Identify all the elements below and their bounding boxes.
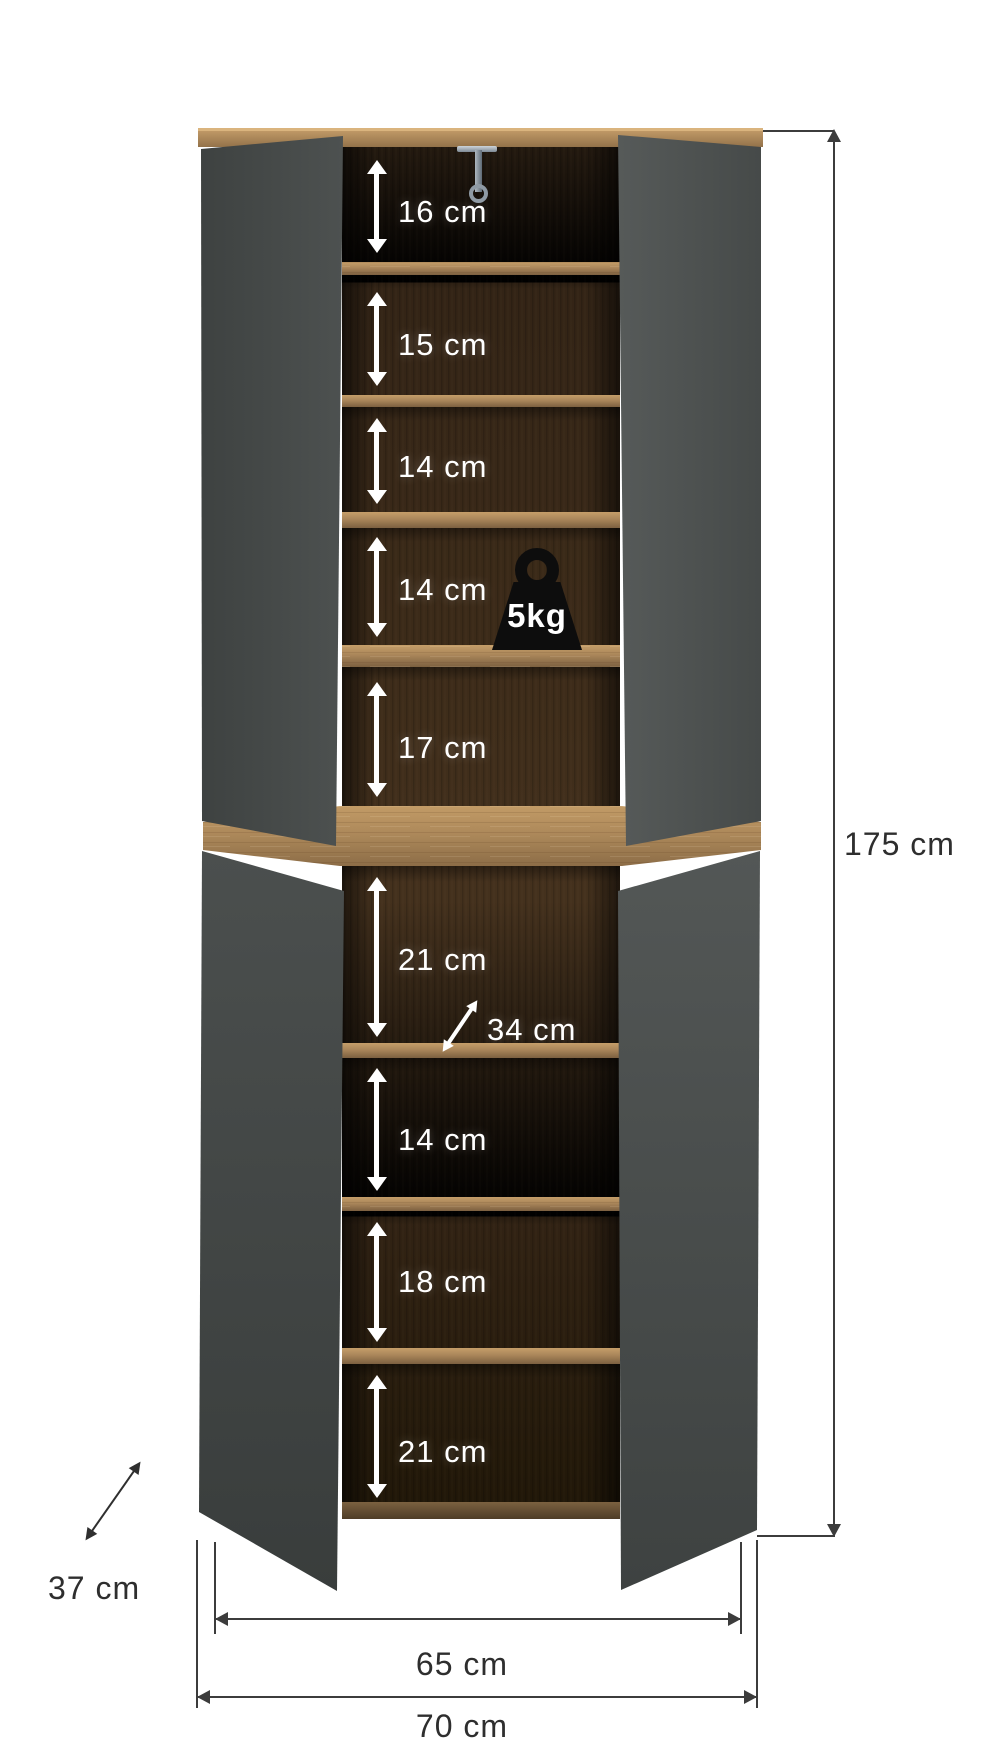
compartment-height-label: 21 cm	[398, 1434, 487, 1470]
measure-arrow-21cm-a	[374, 890, 379, 1024]
inner-width-dim-line	[215, 1618, 741, 1620]
inner-width-arrowhead-right	[728, 1612, 741, 1626]
door-upper-left	[201, 136, 343, 846]
height-dim-arrowhead-up	[827, 129, 841, 142]
outer-width-label: 70 cm	[400, 1708, 524, 1745]
outer-width-arrowhead-right	[744, 1690, 757, 1704]
inner-width-label: 65 cm	[400, 1646, 524, 1683]
inner-width-arrowhead-left	[215, 1612, 228, 1626]
top-board-highlight	[198, 128, 763, 131]
measure-arrow-14cm-c	[374, 1081, 379, 1178]
compartment-height-label: 21 cm	[398, 942, 487, 978]
cabinet-floor-board	[342, 1502, 620, 1519]
measure-arrow-17cm	[374, 695, 379, 784]
compartment-height-label: 14 cm	[398, 1122, 487, 1158]
measure-arrow-15cm	[374, 305, 379, 373]
measure-arrow-21cm-b	[374, 1388, 379, 1485]
compartment-height-label: 14 cm	[398, 572, 487, 608]
total-height-label: 175 cm	[844, 826, 955, 863]
compartment-height-label: 14 cm	[398, 449, 487, 485]
door-lower-right	[618, 851, 760, 1590]
outer-width-dim-line	[197, 1696, 757, 1698]
depth-label: 37 cm	[48, 1570, 140, 1607]
shelf-depth-label: 34 cm	[487, 1012, 576, 1048]
height-dim-connector-top	[763, 130, 834, 132]
outer-width-arrowhead-left	[197, 1690, 210, 1704]
compartment-height-label: 17 cm	[398, 730, 487, 766]
width-ext-line-right-outer	[756, 1540, 758, 1708]
weight-capacity-badge: 5kg	[492, 597, 582, 635]
compartment-height-label: 15 cm	[398, 327, 487, 363]
dimension-diagram: 5kg 16 cm 15 cm 14 cm 14 cm 17 cm 21 cm …	[0, 0, 984, 1758]
cabinet-illustration	[0, 0, 984, 1758]
compartment-height-label: 18 cm	[398, 1264, 487, 1300]
measure-arrow-18cm	[374, 1235, 379, 1329]
compartment-height-label: 16 cm	[398, 194, 487, 230]
door-upper-right	[618, 135, 761, 846]
measure-arrow-14cm-b	[374, 550, 379, 624]
door-lower-left	[199, 851, 344, 1591]
measure-arrow-14cm-a	[374, 431, 379, 491]
width-ext-line-left-outer	[196, 1540, 198, 1708]
measure-arrow-16cm	[374, 173, 379, 240]
height-dim-line	[833, 140, 835, 1534]
height-dim-connector-bottom	[757, 1535, 835, 1537]
